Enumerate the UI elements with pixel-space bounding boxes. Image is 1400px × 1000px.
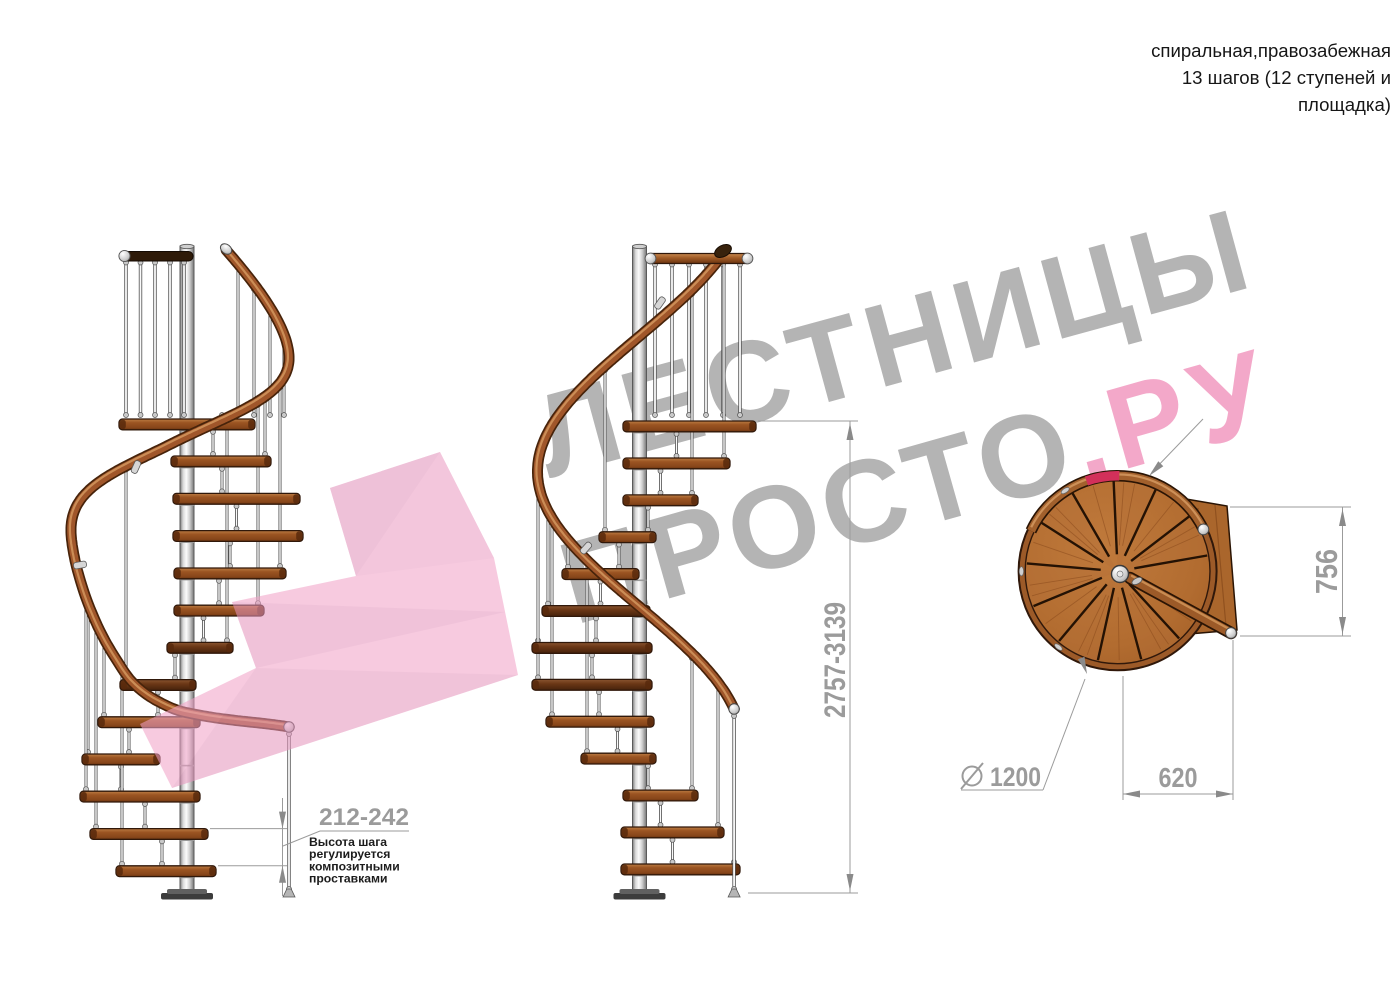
- svg-text:212-242: 212-242: [319, 804, 409, 831]
- svg-text:спиральная,правозабежная: спиральная,правозабежная: [1151, 40, 1391, 61]
- svg-text:2757-3139: 2757-3139: [819, 602, 852, 718]
- svg-text:13 шагов (12 ступеней и: 13 шагов (12 ступеней и: [1182, 67, 1391, 88]
- svg-text:620: 620: [1159, 762, 1198, 793]
- svg-text:1200: 1200: [990, 762, 1041, 792]
- svg-text:проставками: проставками: [309, 872, 388, 886]
- svg-text:площадка): площадка): [1298, 94, 1391, 115]
- svg-text:756: 756: [1309, 549, 1344, 594]
